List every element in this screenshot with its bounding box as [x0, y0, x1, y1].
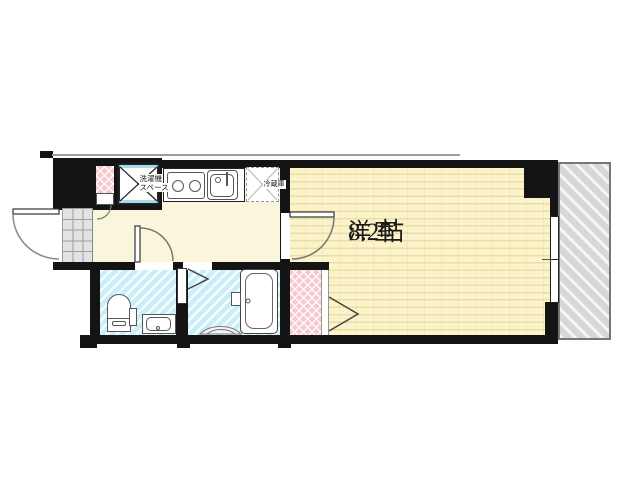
plan-stroke-overlay	[0, 0, 640, 480]
washer-space-label-line1: 洗濯機	[139, 174, 164, 183]
washer-space-label-line2: スペース	[139, 183, 170, 192]
main-room-size: 8.2帖	[348, 219, 404, 247]
floor-plan: 洗濯機 スペース 冷蔵庫 洋室 8.2帖	[0, 0, 640, 480]
washer-space-label: 洗濯機 スペース	[119, 174, 158, 183]
